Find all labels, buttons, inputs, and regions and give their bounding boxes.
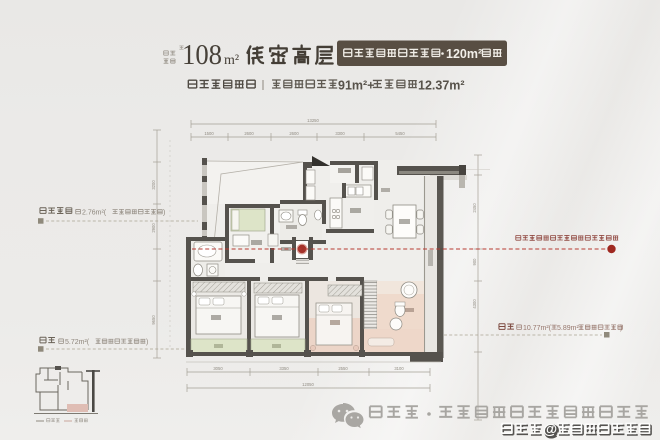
svg-text:2600: 2600 [244, 131, 254, 136]
svg-text:): ) [146, 339, 148, 346]
svg-text:900: 900 [472, 258, 477, 266]
svg-text:): ) [163, 210, 165, 217]
svg-text:3100: 3100 [394, 366, 404, 371]
svg-text:3200: 3200 [151, 180, 156, 190]
svg-text:12050: 12050 [302, 382, 314, 387]
svg-text:3350: 3350 [279, 366, 289, 371]
svg-text:2900: 2900 [151, 223, 156, 233]
svg-text:91m²+: 91m²+ [338, 79, 374, 93]
svg-text:2.76m²(: 2.76m²( [82, 210, 107, 217]
svg-text:2600: 2600 [289, 131, 299, 136]
svg-text:4300: 4300 [472, 299, 477, 309]
svg-text:120m²: 120m² [446, 47, 482, 61]
svg-text:5.72m²(: 5.72m²( [65, 339, 90, 346]
svg-text:108: 108 [182, 40, 222, 71]
svg-text:2550: 2550 [338, 366, 348, 371]
svg-text:10.77m²(: 10.77m²( [523, 325, 552, 332]
svg-text:5450: 5450 [395, 131, 405, 136]
svg-text:1500: 1500 [204, 131, 214, 136]
svg-text:12.37m²: 12.37m² [418, 79, 465, 93]
svg-text:9650: 9650 [151, 315, 156, 325]
svg-text:@: @ [543, 422, 557, 438]
svg-text:3300: 3300 [335, 131, 345, 136]
svg-text:2450: 2450 [472, 203, 477, 213]
svg-text:): ) [620, 325, 622, 332]
svg-text:5.89m²: 5.89m² [557, 325, 579, 332]
svg-text:3050: 3050 [213, 366, 223, 371]
svg-text:13250: 13250 [307, 118, 319, 123]
svg-text:m²: m² [224, 53, 239, 68]
